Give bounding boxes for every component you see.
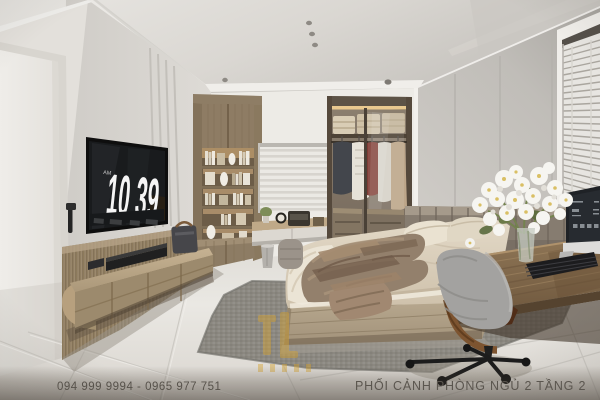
svg-text:PHỐI CẢNH PHÒNG NGỦ 2 TẦNG 2: PHỐI CẢNH PHÒNG NGỦ 2 TẦNG 2	[355, 378, 586, 393]
svg-text:094 999 9994 - 0965 977 751: 094 999 9994 - 0965 977 751	[57, 381, 221, 393]
